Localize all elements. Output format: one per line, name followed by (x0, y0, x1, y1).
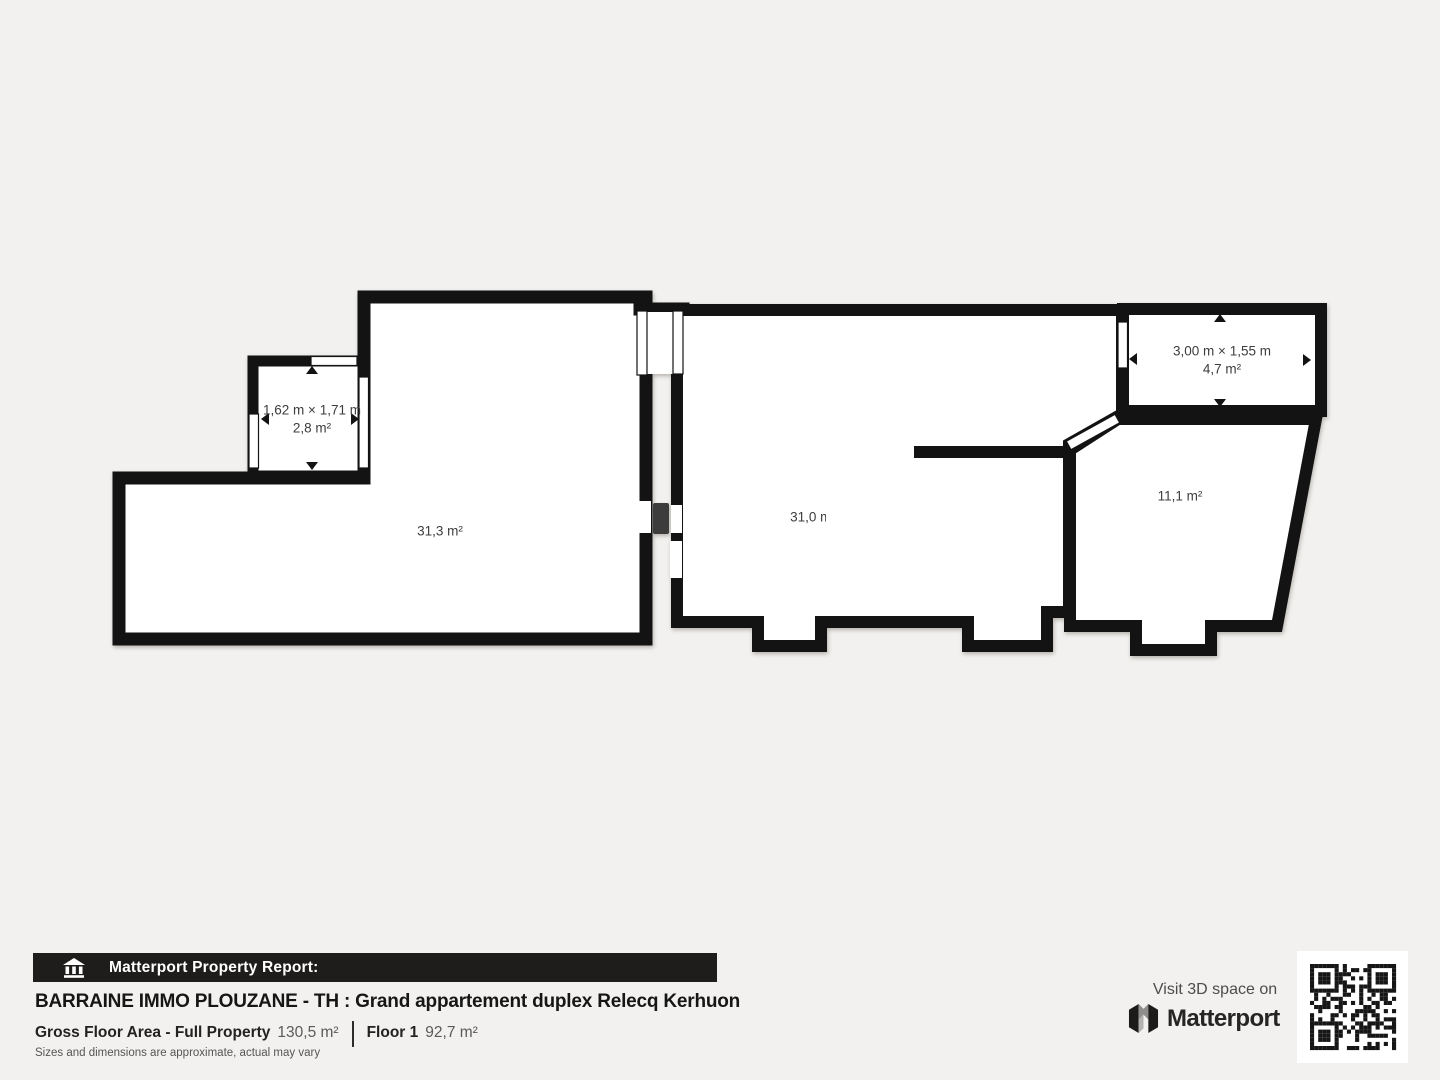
room-dimensions: 3,00 m × 1,55 m (1173, 343, 1271, 361)
matterport-brand: Matterport (1128, 1003, 1280, 1034)
room-area: 2,8 m² (263, 419, 361, 437)
room-dimensions: 1,62 m × 1,71 m (263, 402, 361, 420)
building-columns-icon (63, 958, 85, 978)
qr-code (0, 0, 1440, 1080)
report-bar-label: Matterport Property Report: (109, 959, 319, 977)
gross-floor-area-label: Gross Floor Area - Full Property (35, 1024, 270, 1042)
floor-value: 92,7 m² (425, 1024, 478, 1042)
disclaimer-text: Sizes and dimensions are approximate, ac… (35, 1047, 320, 1059)
gross-floor-area-value: 130,5 m² (277, 1024, 338, 1042)
room-area: 31,3 m² (417, 522, 463, 540)
report-bar: Matterport Property Report: (33, 953, 717, 982)
room-label-bedroom-right: 11,1 m² (1158, 487, 1203, 505)
matterport-wordmark: Matterport (1167, 1005, 1280, 1033)
visit-3d-text: Visit 3D space on (1130, 981, 1300, 999)
room-label-balcony: 3,00 m × 1,55 m 4,7 m² (1173, 343, 1271, 378)
stats-divider (352, 1021, 354, 1047)
floor-label: Floor 1 (367, 1024, 419, 1042)
property-title: BARRAINE IMMO PLOUZANE - TH : Grand appa… (35, 991, 735, 1013)
watermark-fragment (826, 507, 848, 526)
room-area: 4,7 m² (1173, 360, 1271, 378)
matterport-logo-icon (1128, 1003, 1159, 1034)
room-area: 11,1 m² (1158, 487, 1203, 505)
room-label-living-left: 31,3 m² (417, 522, 463, 540)
room-label-closet: 1,62 m × 1,71 m 2,8 m² (263, 402, 361, 437)
floor-area-stats: Gross Floor Area - Full Property 130,5 m… (35, 1020, 478, 1046)
